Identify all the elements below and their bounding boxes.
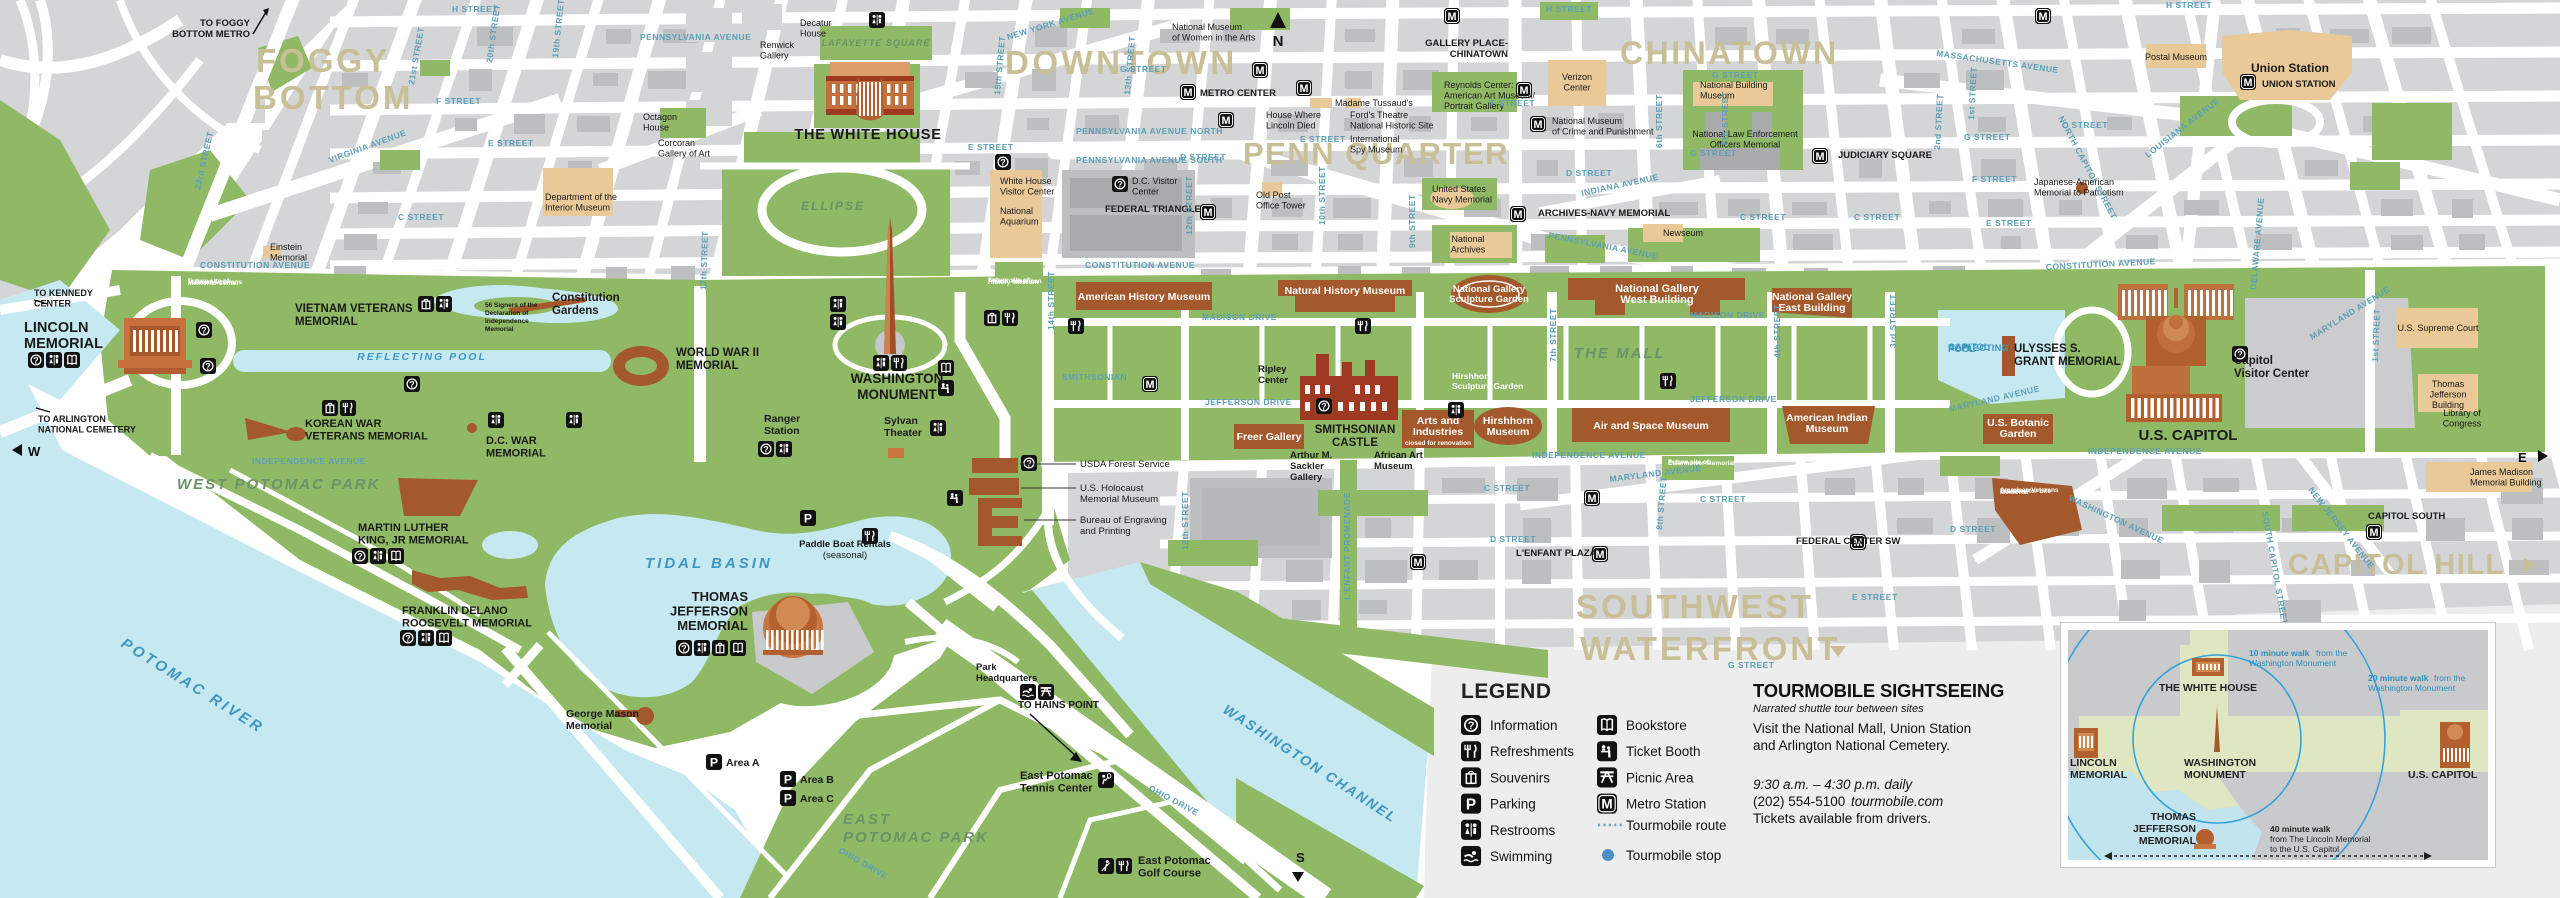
svg-text:METRO CENTER: METRO CENTER <box>1200 88 1276 99</box>
svg-text:and Arlington National Cemeter: and Arlington National Cemetery. <box>1753 738 1950 753</box>
svg-text:GALLERY PLACE-: GALLERY PLACE- <box>1425 38 1508 49</box>
svg-text:East Potomac: East Potomac <box>1020 770 1093 782</box>
svg-text:Memorial Center: Memorial Center <box>188 280 239 287</box>
svg-text:U.S. Holocaust: U.S. Holocaust <box>1080 483 1144 494</box>
svg-text:CASTLE: CASTLE <box>1332 437 1378 449</box>
svg-text:MEMORIAL: MEMORIAL <box>676 360 739 372</box>
svg-text:F STREET: F STREET <box>1972 174 2017 184</box>
svg-text:United States: United States <box>1432 184 1487 194</box>
svg-text:E STREET: E STREET <box>1300 134 1346 144</box>
svg-text:CENTER: CENTER <box>34 299 72 309</box>
svg-text:Narrated shuttle tour between: Narrated shuttle tour between sites <box>1753 703 1924 715</box>
svg-text:African Art: African Art <box>1374 450 1424 461</box>
svg-text:F STREET: F STREET <box>1490 98 1535 108</box>
svg-text:ARCHIVES-NAVY MEMORIAL: ARCHIVES-NAVY MEMORIAL <box>1538 208 1670 219</box>
svg-text:Arthur M.: Arthur M. <box>1290 450 1332 461</box>
svg-text:VETERANS MEMORIAL: VETERANS MEMORIAL <box>305 431 428 443</box>
svg-text:Area B: Area B <box>800 774 834 786</box>
svg-text:Renwick: Renwick <box>760 40 795 50</box>
svg-text:WEST POTOMAC PARK: WEST POTOMAC PARK <box>177 476 380 493</box>
svg-text:Sculpture Garden: Sculpture Garden <box>1449 294 1529 305</box>
svg-text:W: W <box>28 444 41 459</box>
svg-text:Jefferson: Jefferson <box>2430 390 2467 400</box>
svg-text:(seasonal): (seasonal) <box>823 550 867 561</box>
svg-text:Museum: Museum <box>1374 461 1413 472</box>
svg-text:Lincoln Died: Lincoln Died <box>1266 121 1316 131</box>
svg-text:Memorial Building: Memorial Building <box>2470 478 2542 488</box>
svg-text:TIDAL BASIN: TIDAL BASIN <box>645 555 773 572</box>
svg-text:MEMORIAL: MEMORIAL <box>24 336 103 352</box>
svg-text:U.S. CAPITOL: U.S. CAPITOL <box>2408 769 2478 781</box>
svg-text:House: House <box>643 123 669 133</box>
svg-text:Library of: Library of <box>2443 408 2481 418</box>
svg-text:CAPITOL SOUTH: CAPITOL SOUTH <box>2368 511 2445 522</box>
svg-text:E STREET: E STREET <box>1852 592 1898 602</box>
svg-text:Office Tower: Office Tower <box>1256 201 1306 211</box>
svg-text:Swimming: Swimming <box>1490 849 1552 864</box>
svg-text:Center: Center <box>1258 375 1288 386</box>
svg-text:SOUTHWEST: SOUTHWEST <box>1576 588 1814 625</box>
svg-text:Area C: Area C <box>800 793 834 805</box>
svg-text:Sculpture Garden: Sculpture Garden <box>1452 381 1523 391</box>
svg-text:Bookstore: Bookstore <box>1626 718 1687 733</box>
svg-text:Park: Park <box>976 662 997 673</box>
svg-text:WASHINGTON: WASHINGTON <box>2184 757 2256 769</box>
svg-text:James Madison: James Madison <box>2470 467 2533 477</box>
svg-text:of Crime and Punishment: of Crime and Punishment <box>1552 127 1654 137</box>
svg-text:20 minute walk: 20 minute walk <box>2368 673 2429 683</box>
svg-text:TO ARLINGTON: TO ARLINGTON <box>38 414 106 424</box>
svg-text:Area A: Area A <box>726 757 760 769</box>
svg-text:POTOMAC PARK: POTOMAC PARK <box>843 829 989 846</box>
svg-text:from the: from the <box>2316 648 2347 658</box>
svg-text:Sylvan: Sylvan <box>884 415 918 427</box>
svg-text:MARTIN LUTHER: MARTIN LUTHER <box>358 522 448 534</box>
svg-text:NATIONAL CEMETERY: NATIONAL CEMETERY <box>38 425 136 435</box>
svg-text:U.S. CAPITOL: U.S. CAPITOL <box>2139 427 2238 444</box>
svg-text:MADISON DRIVE: MADISON DRIVE <box>1690 310 1765 320</box>
svg-text:Newseum: Newseum <box>1663 228 1703 238</box>
svg-text:Madame Tussaud's: Madame Tussaud's <box>1335 98 1413 108</box>
svg-text:G STREET: G STREET <box>1964 132 2011 142</box>
svg-text:E STREET: E STREET <box>488 138 534 148</box>
svg-text:TO HAINS POINT: TO HAINS POINT <box>1018 700 1099 711</box>
svg-text:Refreshments: Refreshments <box>1490 744 1574 759</box>
svg-text:REFLECTING POOL: REFLECTING POOL <box>357 351 487 363</box>
svg-text:Reynolds Center:: Reynolds Center: <box>1444 80 1514 90</box>
svg-text:U.S. Supreme Court: U.S. Supreme Court <box>2397 323 2479 333</box>
svg-text:56 Signers of the: 56 Signers of the <box>485 302 538 309</box>
svg-text:Einstein: Einstein <box>270 242 302 252</box>
svg-text:Visitor Center: Visitor Center <box>1000 187 1054 197</box>
svg-text:INDEPENDENCE AVENUE: INDEPENDENCE AVENUE <box>2088 446 2202 456</box>
svg-text:KING, JR MEMORIAL: KING, JR MEMORIAL <box>358 535 469 547</box>
svg-text:Memorial: Memorial <box>566 720 612 732</box>
svg-text:East Building: East Building <box>1778 302 1845 314</box>
svg-text:Gallery of Art: Gallery of Art <box>658 149 711 159</box>
svg-text:E: E <box>2518 450 2527 465</box>
svg-text:Bureau of Engraving: Bureau of Engraving <box>1080 515 1167 526</box>
svg-text:Memorial Museum: Memorial Museum <box>1080 494 1158 505</box>
svg-text:Restrooms: Restrooms <box>1490 823 1556 838</box>
svg-text:L'ENFANT PLAZA: L'ENFANT PLAZA <box>1516 548 1597 559</box>
svg-text:4th STREET: 4th STREET <box>1772 304 1782 358</box>
svg-text:National: National <box>1451 234 1484 244</box>
svg-text:Center: Center <box>1132 187 1159 197</box>
svg-text:9th STREET: 9th STREET <box>1407 194 1417 248</box>
svg-text:THE MALL: THE MALL <box>1574 345 1666 362</box>
svg-text:Station: Station <box>764 425 800 437</box>
svg-text:Picnic Area: Picnic Area <box>1626 770 1694 785</box>
svg-text:CHINATOWN: CHINATOWN <box>1620 35 1839 71</box>
svg-text:Independence: Independence <box>485 318 529 325</box>
svg-text:INDEPENDENCE AVENUE: INDEPENDENCE AVENUE <box>252 456 366 466</box>
svg-text:History Museum: History Museum <box>988 279 1039 286</box>
svg-text:9:30 a.m. – 4:30 p.m. daily: 9:30 a.m. – 4:30 p.m. daily <box>1753 777 1913 792</box>
svg-text:Garden: Garden <box>2000 428 2037 440</box>
svg-text:USDA Forest Service: USDA Forest Service <box>1080 459 1170 470</box>
svg-text:Washington Monument: Washington Monument <box>2368 683 2456 693</box>
svg-text:C STREET: C STREET <box>398 212 444 222</box>
svg-text:SMITHSONIAN: SMITHSONIAN <box>1315 424 1396 436</box>
svg-text:Museum: Museum <box>1487 426 1530 438</box>
svg-text:Postal Museum: Postal Museum <box>2145 52 2207 62</box>
svg-text:LINCOLN: LINCOLN <box>24 320 88 336</box>
svg-text:Theater: Theater <box>884 427 922 439</box>
svg-text:CONSTITUTION AVENUE: CONSTITUTION AVENUE <box>200 260 310 270</box>
svg-text:LAFAYETTE SQUARE: LAFAYETTE SQUARE <box>822 38 931 48</box>
svg-text:Octagon: Octagon <box>643 112 677 122</box>
svg-text:FEDERAL CENTER SW: FEDERAL CENTER SW <box>1796 536 1900 547</box>
svg-text:WORLD WAR II: WORLD WAR II <box>676 347 759 359</box>
svg-text:JEFFERSON: JEFFERSON <box>2133 823 2196 835</box>
svg-text:Union Station: Union Station <box>2251 61 2329 75</box>
svg-text:Air and Space Museum: Air and Space Museum <box>1593 420 1709 432</box>
svg-text:THOMAS: THOMAS <box>2151 811 2197 823</box>
svg-text:ULYSSES S.: ULYSSES S. <box>2014 343 2081 355</box>
svg-text:D STREET: D STREET <box>1490 534 1536 544</box>
svg-text:Spy Museum: Spy Museum <box>1350 145 1403 155</box>
svg-text:West Building: West Building <box>1620 294 1693 306</box>
svg-text:Verizon: Verizon <box>1562 72 1592 82</box>
svg-text:National Building: National Building <box>1700 80 1768 90</box>
svg-text:(202) 554-5100: (202) 554-5100 <box>1753 794 1845 809</box>
svg-text:ELLIPSE: ELLIPSE <box>801 199 865 213</box>
svg-text:C STREET: C STREET <box>1740 212 1786 222</box>
svg-text:Ranger: Ranger <box>764 413 800 425</box>
svg-text:closed for renovation: closed for renovation <box>1405 440 1471 447</box>
svg-text:Information: Information <box>1490 718 1558 733</box>
svg-text:5th STREET: 5th STREET <box>1720 91 1730 145</box>
svg-text:EAST: EAST <box>843 811 891 828</box>
svg-text:INDEPENDENCE AVENUE: INDEPENDENCE AVENUE <box>1532 450 1646 460</box>
svg-text:Natural History Museum: Natural History Museum <box>1285 285 1406 297</box>
svg-text:Ripley: Ripley <box>1258 364 1287 375</box>
svg-text:National Law Enforcement: National Law Enforcement <box>1692 129 1798 139</box>
svg-text:Department of the: Department of the <box>545 192 617 202</box>
svg-text:L'ENFANT PROMENADE: L'ENFANT PROMENADE <box>1342 492 1352 600</box>
svg-text:Visitor Center: Visitor Center <box>2234 368 2310 380</box>
svg-text:D STREET: D STREET <box>1566 168 1612 178</box>
svg-text:POOL: POOL <box>1948 344 1975 355</box>
svg-text:THOMAS: THOMAS <box>692 589 749 604</box>
svg-text:E STREET: E STREET <box>1986 218 2032 228</box>
svg-text:WASHINGTON: WASHINGTON <box>851 371 944 386</box>
svg-text:Gallery: Gallery <box>1290 472 1323 483</box>
svg-text:Sackler: Sackler <box>1290 461 1324 472</box>
svg-text:Thomas: Thomas <box>2432 379 2465 389</box>
svg-text:C STREET: C STREET <box>1484 483 1530 493</box>
svg-text:F STREET: F STREET <box>436 96 481 106</box>
svg-text:National Museum: National Museum <box>1172 22 1242 32</box>
svg-text:Hirshhorn: Hirshhorn <box>1452 371 1493 381</box>
svg-text:Tickets available from drivers: Tickets available from drivers. <box>1753 811 1931 826</box>
svg-text:National: National <box>1000 206 1033 216</box>
svg-text:14th STREET: 14th STREET <box>1046 271 1056 330</box>
svg-text:UNION STATION: UNION STATION <box>2262 79 2336 90</box>
svg-text:Tourmobile route: Tourmobile route <box>1626 818 1727 833</box>
svg-text:DOWNTOWN: DOWNTOWN <box>1005 44 1238 81</box>
svg-text:MONUMENT: MONUMENT <box>857 387 937 402</box>
svg-text:G STREET: G STREET <box>1728 660 1775 670</box>
svg-text:Aquarium: Aquarium <box>1000 217 1039 227</box>
svg-text:House: House <box>800 29 826 39</box>
svg-text:Museum: Museum <box>1806 423 1849 435</box>
svg-text:40 minute walk: 40 minute walk <box>2270 824 2331 834</box>
svg-text:G STREET: G STREET <box>1690 148 1737 158</box>
svg-text:Golf Course: Golf Course <box>1138 868 1201 880</box>
svg-text:VIETNAM VETERANS: VIETNAM VETERANS <box>295 303 413 315</box>
svg-text:Navy Memorial: Navy Memorial <box>1432 195 1492 205</box>
svg-text:Memorial: Memorial <box>485 326 514 333</box>
svg-text:ROOSEVELT MEMORIAL: ROOSEVELT MEMORIAL <box>402 618 532 630</box>
svg-text:C STREET: C STREET <box>1700 494 1746 504</box>
svg-text:Paddle Boat Rentals: Paddle Boat Rentals <box>799 539 891 550</box>
svg-text:from the: from the <box>2434 673 2465 683</box>
svg-text:Corcoran: Corcoran <box>658 138 695 148</box>
svg-text:Memorial: Memorial <box>2000 489 2029 496</box>
svg-text:Capitol: Capitol <box>2234 355 2273 367</box>
svg-text:1st STREET: 1st STREET <box>2370 308 2382 362</box>
svg-text:Memorial to Patriotism: Memorial to Patriotism <box>2034 188 2124 198</box>
svg-text:12th STREET: 12th STREET <box>1180 491 1190 550</box>
svg-text:WATERFRONT: WATERFRONT <box>1580 630 1840 667</box>
svg-text:George Mason: George Mason <box>566 708 639 720</box>
svg-text:PENNSYLVANIA AVENUE NORTH: PENNSYLVANIA AVENUE NORTH <box>1076 126 1223 136</box>
svg-text:Congress: Congress <box>2443 419 2482 429</box>
svg-text:MONUMENT: MONUMENT <box>2184 769 2246 781</box>
svg-text:National Historic Site: National Historic Site <box>1350 121 1434 131</box>
svg-text:LEGEND: LEGEND <box>1461 680 1552 703</box>
svg-text:tourmobile.com: tourmobile.com <box>1851 794 1943 809</box>
svg-text:D.C. WAR: D.C. WAR <box>486 435 537 447</box>
svg-text:SMITHSONIAN: SMITHSONIAN <box>1062 372 1127 382</box>
svg-text:CHINATOWN: CHINATOWN <box>1450 49 1508 60</box>
svg-text:Tennis Center: Tennis Center <box>1020 783 1093 795</box>
svg-text:of Women in the Arts: of Women in the Arts <box>1172 33 1256 43</box>
svg-text:3rd STREET: 3rd STREET <box>1888 294 1898 348</box>
svg-text:Old Post: Old Post <box>1256 190 1291 200</box>
svg-text:White House: White House <box>1000 176 1052 186</box>
svg-text:MEMORIAL: MEMORIAL <box>486 448 546 460</box>
svg-text:10th STREET: 10th STREET <box>1317 166 1327 225</box>
svg-text:MEMORIAL: MEMORIAL <box>295 316 358 328</box>
svg-text:International: International <box>1350 134 1400 144</box>
svg-text:TOURMOBILE SIGHTSEEING: TOURMOBILE SIGHTSEEING <box>1753 680 2004 701</box>
svg-text:National Museum: National Museum <box>1552 116 1622 126</box>
svg-text:Freer Gallery: Freer Gallery <box>1237 431 1302 443</box>
svg-text:BOTTOM: BOTTOM <box>253 79 413 116</box>
svg-text:CONSTITUTION AVENUE: CONSTITUTION AVENUE <box>1085 260 1195 270</box>
svg-text:THE WHITE HOUSE: THE WHITE HOUSE <box>2159 682 2257 694</box>
svg-text:Washington Monument: Washington Monument <box>2249 658 2337 668</box>
svg-text:D STREET: D STREET <box>1950 524 1996 534</box>
svg-text:D.C. Visitor: D.C. Visitor <box>1132 176 1177 186</box>
svg-text:CAPITOL HILL: CAPITOL HILL <box>2288 549 2505 581</box>
svg-text:JEFFERSON DRIVE: JEFFERSON DRIVE <box>1690 394 1777 404</box>
svg-text:American History Museum: American History Museum <box>1078 291 1210 303</box>
svg-text:LINCOLN: LINCOLN <box>2070 757 2117 769</box>
svg-text:JEFFERSON: JEFFERSON <box>670 604 748 619</box>
svg-text:10 minute walk: 10 minute walk <box>2249 648 2310 658</box>
svg-text:Decatur: Decatur <box>800 18 832 28</box>
svg-text:Gallery: Gallery <box>760 51 789 61</box>
svg-text:MADISON DRIVE: MADISON DRIVE <box>1202 312 1277 322</box>
svg-text:Headquarters: Headquarters <box>976 673 1037 684</box>
svg-text:GRANT MEMORIAL: GRANT MEMORIAL <box>2014 356 2121 368</box>
svg-text:Center: Center <box>1563 83 1590 93</box>
svg-text:House Where: House Where <box>1266 110 1321 120</box>
svg-text:MEMORIAL: MEMORIAL <box>2139 835 2197 847</box>
svg-text:PENNSYLVANIA AVENUE: PENNSYLVANIA AVENUE <box>640 32 751 42</box>
svg-text:KOREAN WAR: KOREAN WAR <box>305 418 381 430</box>
svg-text:7th STREET: 7th STREET <box>1548 308 1558 362</box>
svg-text:6th STREET: 6th STREET <box>1654 94 1664 148</box>
svg-text:H STREET: H STREET <box>1546 4 1592 14</box>
svg-text:D STREET: D STREET <box>1180 152 1226 162</box>
svg-text:from The Lincoln Memorial: from The Lincoln Memorial <box>2270 834 2371 844</box>
svg-text:17th STREET: 17th STREET <box>698 231 710 290</box>
svg-text:S: S <box>1296 850 1305 865</box>
svg-text:Interior Museum: Interior Museum <box>545 203 610 213</box>
svg-text:Archives: Archives <box>1451 245 1486 255</box>
svg-text:to the U.S. Capitol: to the U.S. Capitol <box>2270 844 2339 854</box>
svg-text:THE WHITE HOUSE: THE WHITE HOUSE <box>794 127 941 143</box>
svg-text:G STREET: G STREET <box>1712 70 1759 80</box>
svg-text:Declaration of: Declaration of <box>485 310 529 317</box>
svg-text:Souvenirs: Souvenirs <box>1490 770 1550 785</box>
svg-text:Ticket Booth: Ticket Booth <box>1626 744 1701 759</box>
svg-text:TO FOGGY: TO FOGGY <box>200 18 251 29</box>
svg-text:E STREET: E STREET <box>968 142 1014 152</box>
svg-text:MEMORIAL: MEMORIAL <box>2070 769 2128 781</box>
svg-text:BOTTOM METRO: BOTTOM METRO <box>172 29 250 40</box>
svg-text:FOGGY: FOGGY <box>256 42 390 79</box>
svg-text:Visit the National Mall, Union: Visit the National Mall, Union Station <box>1753 721 1971 736</box>
svg-text:MEMORIAL: MEMORIAL <box>677 618 748 633</box>
svg-text:JEFFERSON DRIVE: JEFFERSON DRIVE <box>1205 397 1292 407</box>
svg-text:Ford's Theatre: Ford's Theatre <box>1350 110 1408 120</box>
svg-text:TO KENNEDY: TO KENNEDY <box>34 288 93 298</box>
svg-text:C STREET: C STREET <box>2062 120 2108 130</box>
svg-text:C STREET: C STREET <box>1854 212 1900 222</box>
svg-text:Parking: Parking <box>1490 797 1536 812</box>
svg-text:Tourmobile stop: Tourmobile stop <box>1626 848 1721 863</box>
svg-text:N: N <box>1273 33 1284 50</box>
svg-text:12th STREET: 12th STREET <box>1184 176 1194 235</box>
svg-text:and Printing: and Printing <box>1080 526 1131 537</box>
svg-text:H STREET: H STREET <box>2166 0 2212 10</box>
svg-text:Gardens: Gardens <box>552 305 599 317</box>
svg-text:Metro Station: Metro Station <box>1626 797 1706 812</box>
svg-text:Industries: Industries <box>1413 426 1463 438</box>
svg-text:Constitution: Constitution <box>552 292 620 304</box>
svg-text:JUDICIARY SQUARE: JUDICIARY SQUARE <box>1838 150 1932 161</box>
svg-text:East Potomac: East Potomac <box>1138 855 1211 867</box>
svg-text:FRANKLIN DELANO: FRANKLIN DELANO <box>402 605 508 617</box>
